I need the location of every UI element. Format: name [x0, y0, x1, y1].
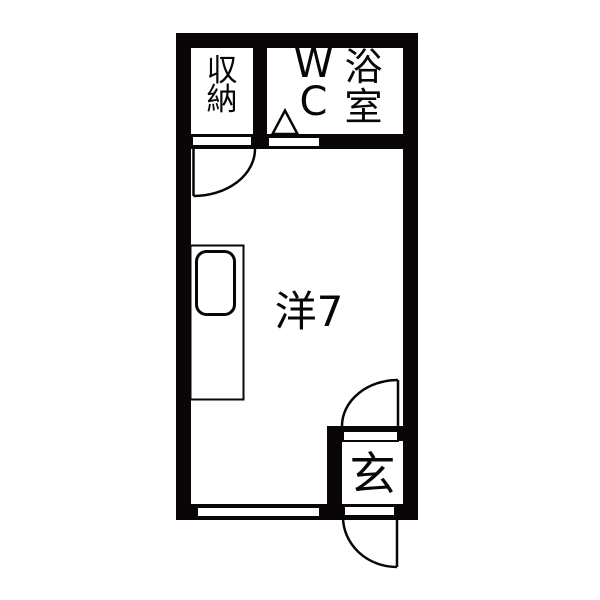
kitchen-sink [197, 252, 235, 315]
entrance-label: 玄 [342, 450, 403, 498]
floorplan-canvas: 収納 WC 浴室 洋7 玄 [0, 0, 600, 600]
door-arc-closet [194, 149, 256, 196]
living-room-label: 洋7 [239, 288, 379, 335]
door-arc-entrance [343, 517, 397, 567]
wc-label: WC [292, 45, 335, 121]
closet-label: 収納 [205, 57, 239, 115]
door-arc-genkan [342, 380, 398, 426]
bath-label: 浴室 [343, 47, 384, 127]
